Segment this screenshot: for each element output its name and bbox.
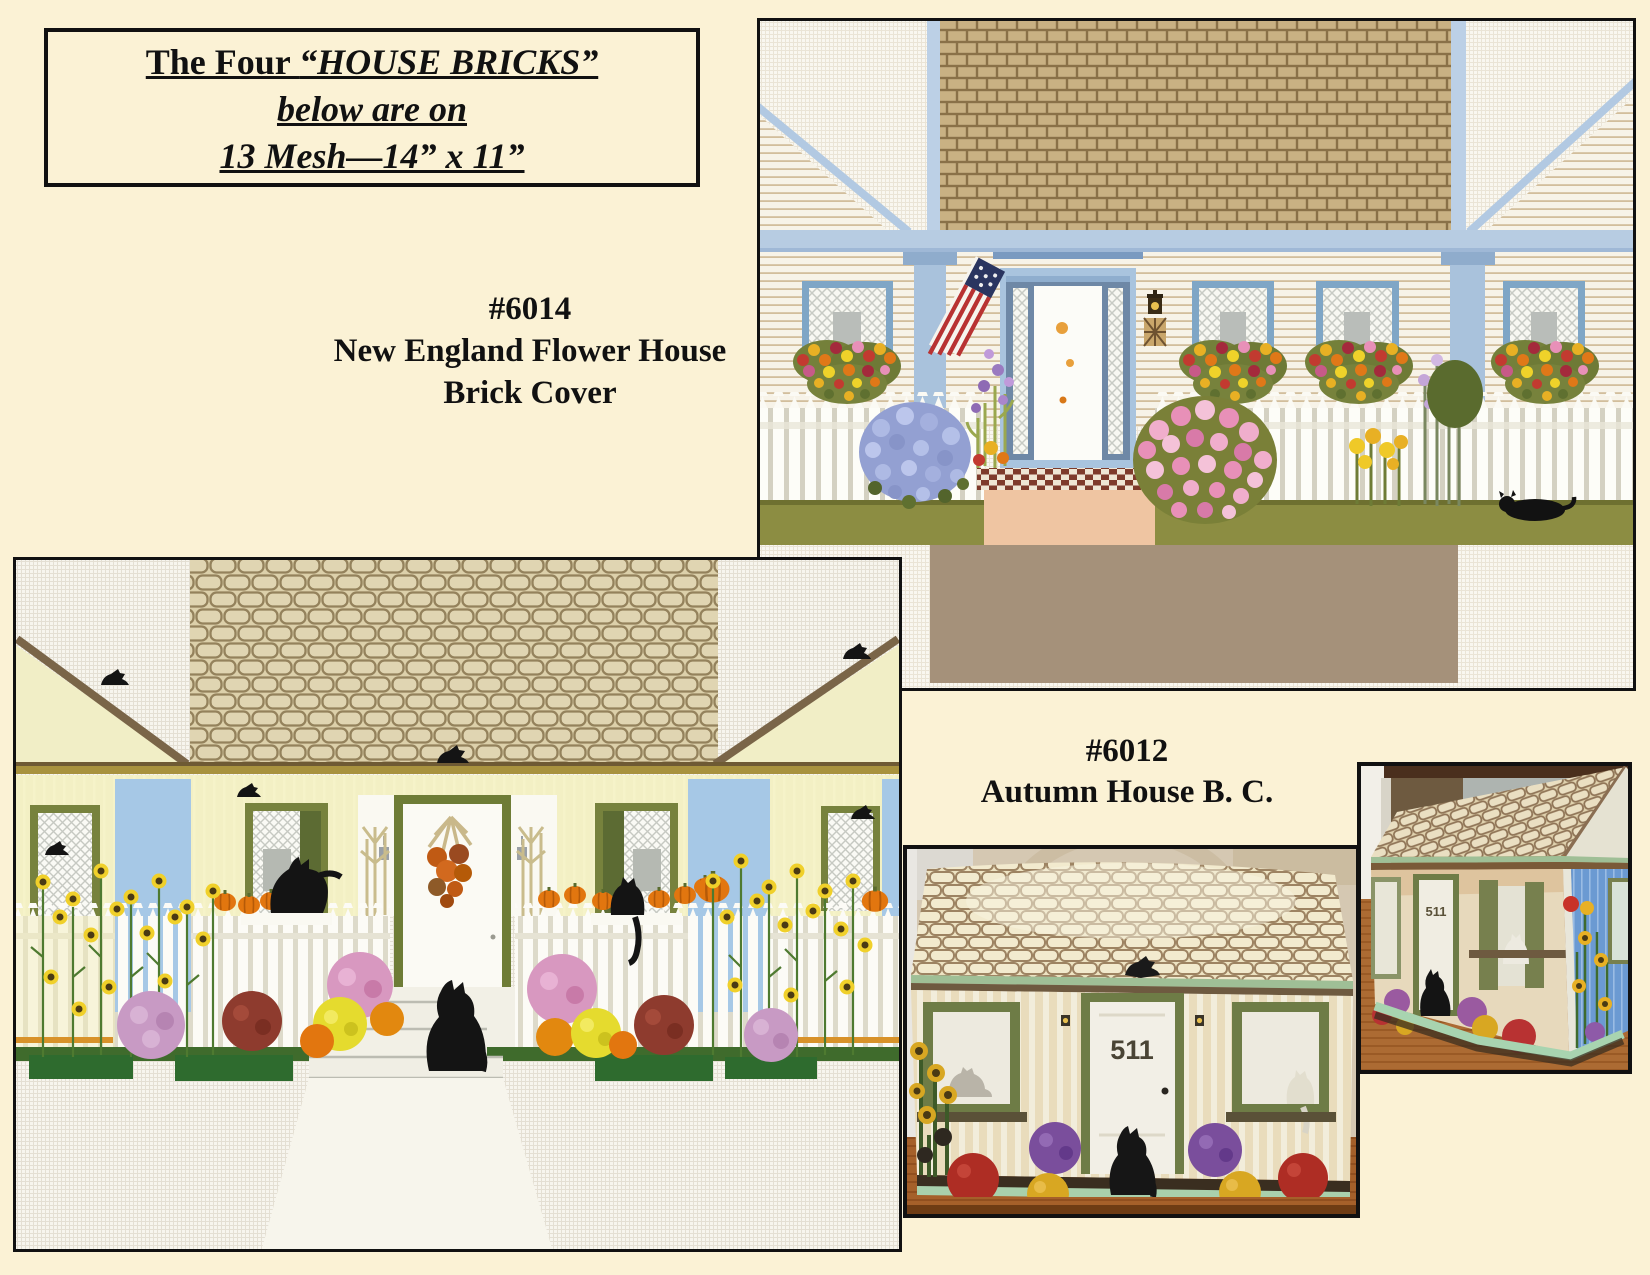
svg-text:511: 511 xyxy=(1426,904,1447,919)
svg-text:511: 511 xyxy=(1110,1035,1154,1065)
